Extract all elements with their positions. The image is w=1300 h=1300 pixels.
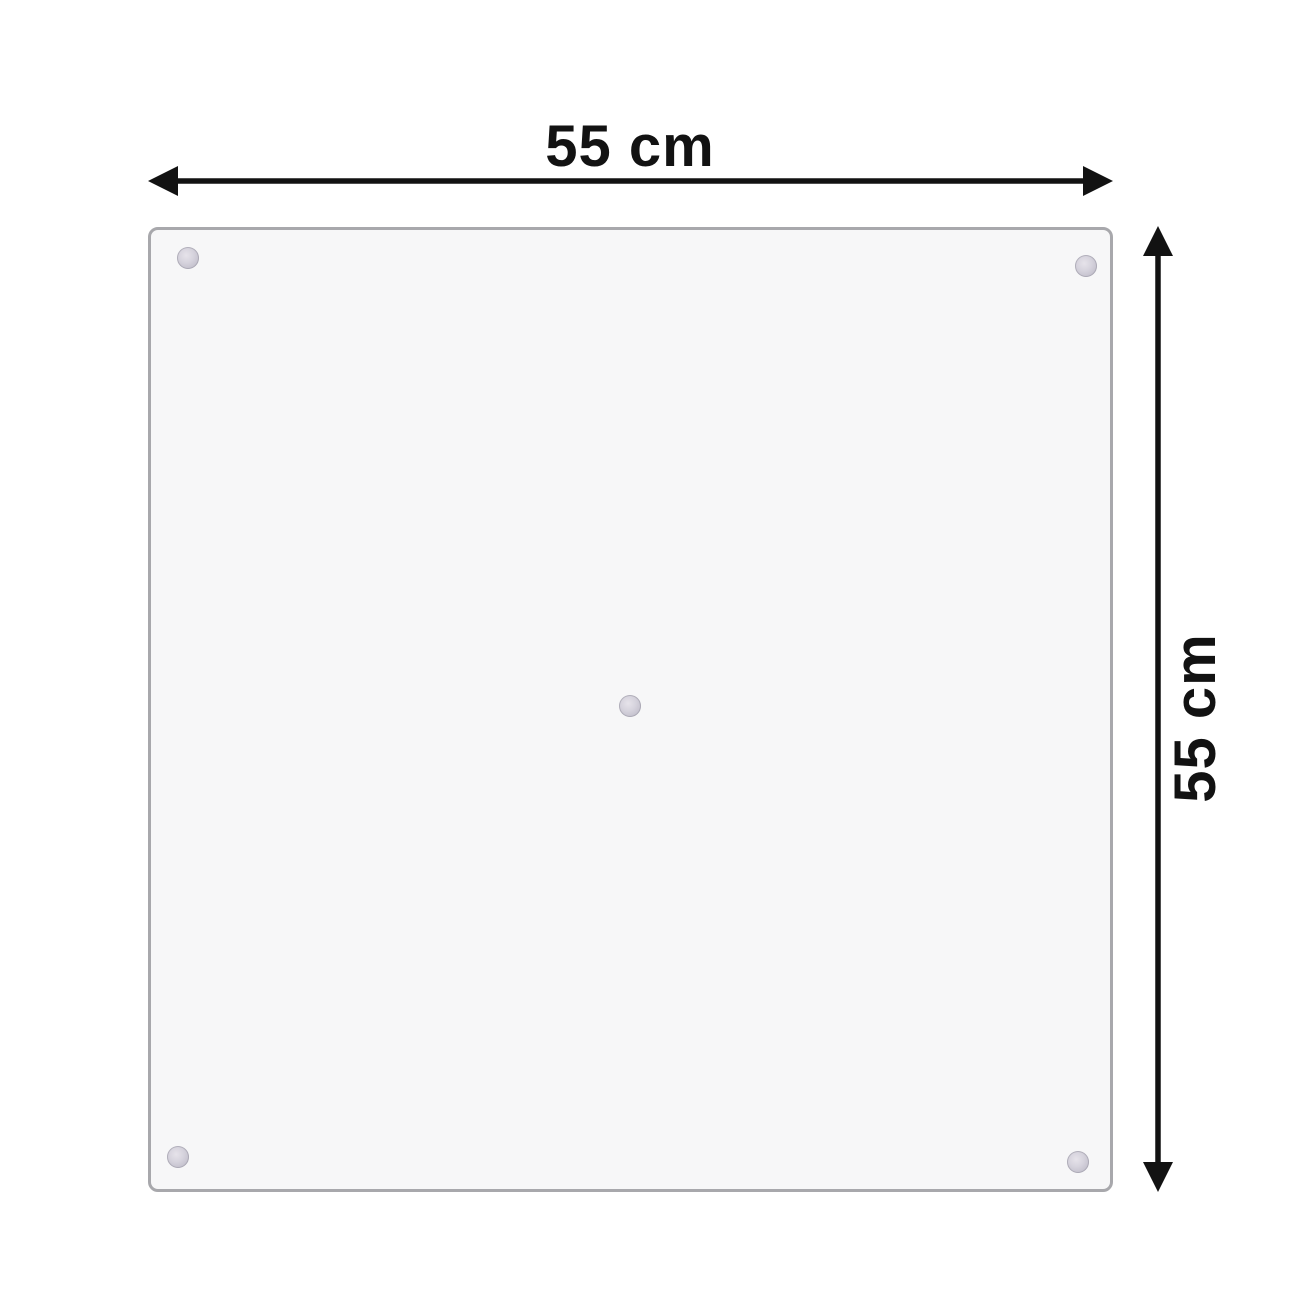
suction-cup-top-right bbox=[1075, 255, 1097, 277]
suction-cup-bottom-left bbox=[167, 1146, 189, 1168]
height-dimension-label: 55 cm bbox=[1167, 633, 1225, 802]
glass-panel bbox=[148, 227, 1113, 1192]
suction-cup-top-left bbox=[177, 247, 199, 269]
suction-cup-center bbox=[619, 695, 641, 717]
width-dimension-label: 55 cm bbox=[148, 118, 1112, 176]
suction-cup-bottom-right bbox=[1067, 1151, 1089, 1173]
dimension-diagram: 55 cm 55 cm bbox=[0, 0, 1300, 1300]
